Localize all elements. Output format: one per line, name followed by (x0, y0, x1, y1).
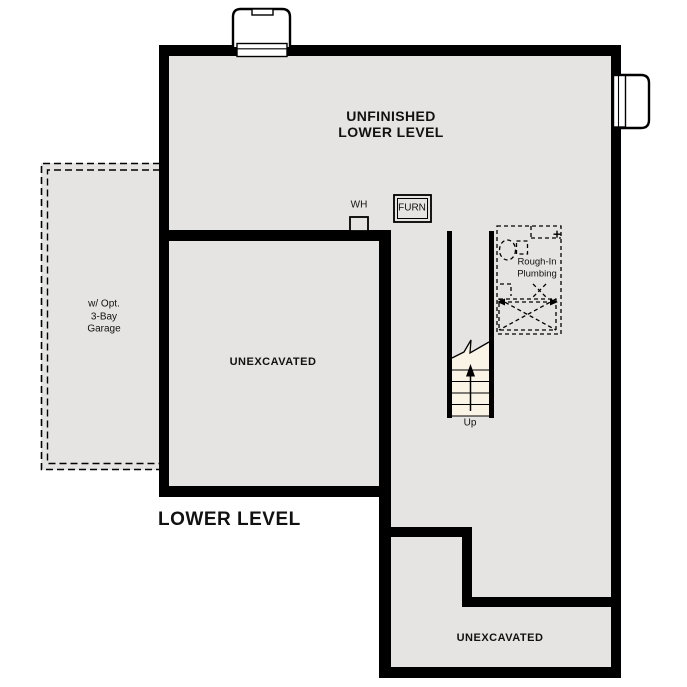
furnace-label: FURN (398, 203, 426, 214)
plumbing-label: Rough-In Plumbing (517, 257, 557, 280)
plumbing-label-line1: Rough-In (517, 257, 557, 269)
floor-plan: UNFINISHED LOWER LEVEL WH FURN Rough-In … (0, 0, 687, 687)
window-well-top-notch (252, 9, 273, 15)
window-well-right (614, 75, 650, 128)
main-room-label-line2: LOWER LEVEL (338, 124, 444, 140)
unexcavated-bottom-label: UNEXCAVATED (457, 632, 544, 644)
main-room-label-line1: UNFINISHED (338, 108, 444, 124)
garage-label-line1: w/ Opt. (87, 298, 120, 311)
plan-title: LOWER LEVEL (158, 509, 301, 531)
floor-plan-drawing (0, 0, 687, 687)
unexcavated-middle-label: UNEXCAVATED (230, 356, 317, 368)
water-heater-label: WH (351, 200, 368, 211)
plumbing-label-line2: Plumbing (517, 268, 557, 280)
main-room-label: UNFINISHED LOWER LEVEL (338, 108, 444, 140)
garage-label-line3: Garage (87, 323, 120, 336)
window-well-top (233, 9, 290, 57)
stairs-up-label: Up (464, 418, 477, 429)
window-sill-right (614, 76, 626, 128)
window-sill-top (237, 44, 287, 57)
water-heater (350, 217, 368, 231)
garage-label-line2: 3-Bay (87, 311, 120, 324)
garage-label: w/ Opt. 3-Bay Garage (87, 298, 120, 336)
